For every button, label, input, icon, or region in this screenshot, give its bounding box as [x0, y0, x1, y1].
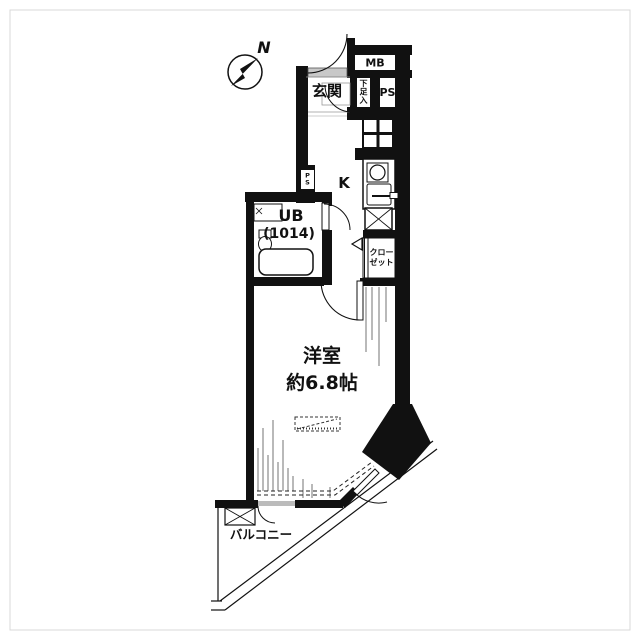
kitchen-counter-unit [363, 159, 398, 209]
stove-handle [390, 193, 398, 199]
wall-bottom-right [295, 500, 343, 508]
kitchen-label: K [338, 174, 351, 192]
wall-right-outer [395, 55, 410, 415]
bathtub [259, 249, 313, 275]
entrance-label: 玄関 [312, 82, 342, 100]
balcony-window-sash [258, 501, 295, 506]
wall-ub-bottom [246, 277, 324, 286]
wall-closet-bottom [360, 278, 396, 286]
wall-left-outer [246, 192, 254, 507]
main-room-label: 洋室 [303, 344, 341, 367]
wall-left-upper [296, 66, 308, 166]
washing-machine-space [365, 208, 392, 230]
compass-north-label: N [257, 38, 271, 57]
pipe-space-small-label: PS [305, 172, 310, 187]
wall-segment [363, 230, 395, 238]
floor-plan-drawing: MB 下足入 PS PS 玄関 K [0, 0, 640, 640]
stove-box [367, 184, 391, 205]
pipe-space-label: PS [380, 86, 396, 99]
meter-box-label: MB [365, 57, 384, 70]
wall-ub-top [245, 192, 332, 202]
wall-segment [355, 148, 395, 160]
wall-segment [350, 78, 357, 108]
bath-door-leaf [322, 203, 329, 230]
closet-label-line1: クロー [370, 247, 394, 257]
wall-segment [352, 45, 412, 55]
wall-segment [393, 119, 410, 160]
closet-label-line2: ゼット [370, 257, 394, 267]
unit-bath-size-label: (1014) [263, 226, 315, 242]
main-room-size-label: 約6.8帖 [286, 371, 358, 394]
wall-segment [370, 78, 380, 108]
floor-plan: MB 下足入 PS PS 玄関 K [0, 0, 640, 640]
unit-bath-label: UB [278, 206, 303, 225]
wall-ub-right-lower [322, 230, 332, 285]
sink-basin [370, 165, 385, 180]
wall-bottom-left [215, 500, 258, 508]
balcony-label: バルコニー [230, 527, 292, 542]
room-door-leaf [357, 281, 363, 320]
stove-grid-box [363, 119, 393, 148]
shoe-storage-label: 下足入 [359, 79, 369, 105]
